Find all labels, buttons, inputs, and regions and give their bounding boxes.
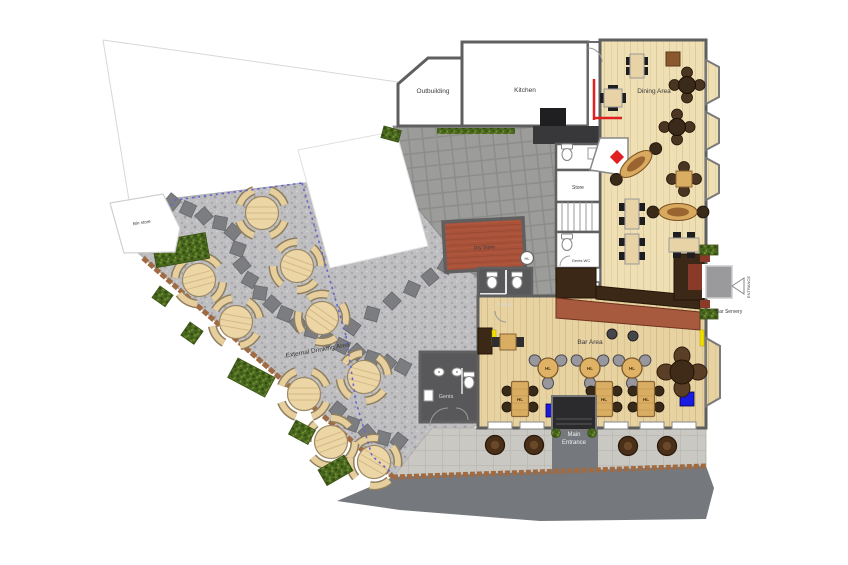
toilet-icon xyxy=(562,234,573,251)
outbuilding-label: Outbuilding xyxy=(417,88,450,95)
entrance-arrow-icon xyxy=(732,278,744,294)
hl-tag: HL xyxy=(587,366,593,371)
urinal-icon xyxy=(424,390,433,401)
toilet-icon xyxy=(464,372,475,389)
external-table xyxy=(240,191,285,236)
hl-tag: HL xyxy=(601,397,607,402)
pavement-table xyxy=(658,437,677,456)
fire-point-yellow xyxy=(700,330,704,346)
pavement-table xyxy=(525,436,544,455)
bay-window xyxy=(706,112,719,150)
bay-window-bar xyxy=(706,338,720,406)
pavement-table xyxy=(486,436,505,455)
floor-plan-drawing: Dry Store HL xyxy=(0,0,848,565)
store-label: Store xyxy=(572,185,584,191)
dry-store-room: Dry Store xyxy=(443,218,526,272)
bay-window xyxy=(706,158,719,200)
entrance-planter xyxy=(700,245,718,255)
external-table xyxy=(282,372,327,417)
main-entrance-label-1: Main xyxy=(567,432,580,438)
entrance-wall-red xyxy=(700,300,710,308)
planting-strip xyxy=(437,128,515,134)
gents-label: Gents xyxy=(439,394,454,400)
hl-tag: HL xyxy=(643,397,649,402)
bar-stool xyxy=(628,331,638,341)
hl-tag: HL xyxy=(517,397,523,402)
bay-window xyxy=(706,60,719,104)
bar-area-label: Bar Area xyxy=(577,339,603,346)
hl-tag: HL xyxy=(524,256,530,261)
bay-windows-dining xyxy=(706,60,719,200)
hl-tag: HL xyxy=(545,366,551,371)
dry-store-label: Dry Store xyxy=(474,244,496,251)
dining-table xyxy=(600,85,626,111)
kitchen-duct xyxy=(540,108,566,128)
side-entrance-step xyxy=(706,266,732,298)
sink-icon xyxy=(434,368,444,376)
ladies-label: Ladies xyxy=(498,302,513,308)
hl-tag: HL xyxy=(629,366,635,371)
kitchen-room xyxy=(462,42,588,126)
pavement-table xyxy=(619,437,638,456)
gents-wc-label: Gents WC xyxy=(572,258,591,263)
side-entrance-label: ENTRANCE xyxy=(746,276,751,298)
kitchen-label: Kitchen xyxy=(514,87,536,94)
side-table-brown xyxy=(666,52,680,66)
floor-plan-canvas: Dry Store HL xyxy=(0,0,848,565)
toilet-icon xyxy=(512,272,523,289)
bar-stool xyxy=(607,329,617,339)
toilet-icon xyxy=(562,144,573,161)
entrance-plant xyxy=(552,429,561,438)
main-entrance-label-2: Entrance xyxy=(562,440,587,446)
toilet-icon xyxy=(487,272,498,289)
entrance-plant xyxy=(588,429,597,438)
staircase xyxy=(556,202,600,232)
bar-servery-label: Bar Servery xyxy=(716,309,743,315)
main-entrance-vestibule xyxy=(552,396,596,430)
sink-icon xyxy=(452,368,462,376)
dining-area-label: Dining Area xyxy=(637,88,671,95)
